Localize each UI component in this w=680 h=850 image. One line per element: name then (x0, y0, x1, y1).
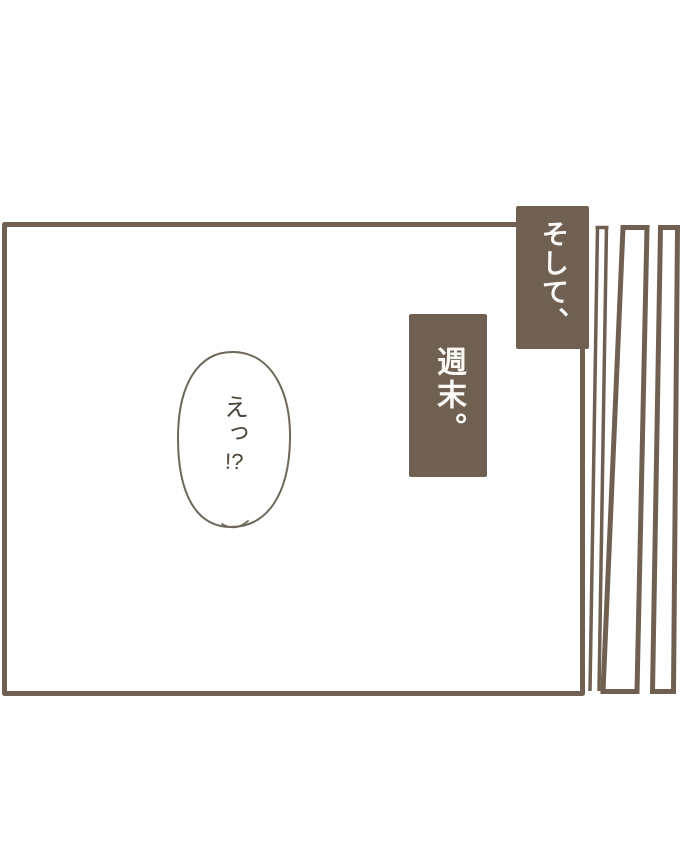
caption-text-soshite: そして、 (539, 220, 566, 336)
comic-lineart (0, 0, 680, 850)
page-edge-strip-1 (603, 228, 647, 692)
caption-box-shuumatsu: 週末。 (409, 314, 487, 477)
speech-bubble-text: えっ !? (198, 394, 270, 486)
caption-text-shuumatsu: 週末。 (433, 346, 463, 445)
speech-bubble-line-2: !? (224, 449, 243, 476)
speech-bubble-line-1: えっ (222, 394, 247, 446)
panel-border (5, 225, 583, 694)
page-edge-slant-line-1 (590, 227, 598, 691)
page-edge-strip-2 (653, 228, 678, 692)
caption-box-soshite: そして、 (516, 206, 589, 349)
